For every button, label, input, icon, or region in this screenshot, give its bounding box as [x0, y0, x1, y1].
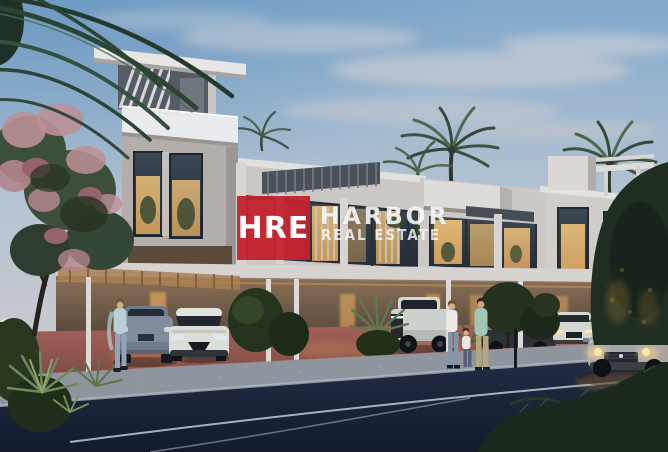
- roof-box: [548, 156, 588, 190]
- man-leg: [476, 336, 482, 368]
- planter-bush: [532, 293, 560, 317]
- bumper: [170, 350, 228, 357]
- headlight: [585, 330, 593, 333]
- blossom-cluster: [66, 146, 106, 174]
- blossom-cluster: [28, 188, 60, 212]
- indoor-plant: [177, 198, 195, 230]
- indoor-plant: [441, 242, 455, 262]
- wheel: [216, 356, 226, 361]
- hubcap: [405, 341, 411, 347]
- person-leg: [115, 334, 120, 368]
- hubcap: [437, 341, 443, 347]
- street-post: [514, 328, 517, 370]
- headlight: [594, 348, 602, 356]
- bush-highlight: [232, 296, 264, 324]
- blossom-cluster: [58, 249, 90, 271]
- badge: [619, 354, 623, 358]
- woman-leg: [448, 332, 453, 366]
- child-leg: [468, 349, 472, 367]
- person-head: [117, 302, 124, 309]
- cloud: [280, 96, 560, 124]
- person-leg: [122, 334, 127, 366]
- shoe: [447, 365, 453, 369]
- blossom-shadow: [44, 228, 68, 244]
- pergola-post: [604, 170, 608, 196]
- woman-leg: [454, 332, 459, 366]
- man-torso: [475, 308, 488, 336]
- shoe: [113, 368, 121, 372]
- round-bush: [269, 312, 309, 356]
- child-leg: [464, 349, 468, 367]
- column: [86, 277, 91, 372]
- side-mirror: [583, 338, 589, 342]
- woman-torso: [447, 310, 458, 332]
- person-torso: [114, 308, 127, 334]
- bush-base: [356, 330, 400, 358]
- roof-box-side: [588, 156, 596, 190]
- dark-leaves: [60, 196, 108, 232]
- dark-leaves: [30, 164, 70, 192]
- cloud: [330, 52, 630, 88]
- hre-logo-badge: HRE: [237, 196, 310, 260]
- hood-line: [172, 330, 226, 333]
- watermark-brand-suffix: REAL ESTATE: [321, 226, 441, 244]
- pilaster: [494, 214, 502, 270]
- child-torso: [462, 336, 471, 349]
- man-leg: [483, 336, 489, 368]
- shoe: [120, 366, 128, 370]
- headlight: [642, 348, 650, 356]
- hre-logo-text: HRE: [238, 211, 310, 246]
- rendering-canvas: HRE HARBOR REAL ESTATE: [0, 0, 668, 452]
- tower-window-divider: [162, 152, 170, 236]
- wheel: [172, 356, 182, 361]
- woman-head: [449, 303, 456, 310]
- uplight-glow: [606, 280, 630, 324]
- indoor-plant: [140, 196, 156, 224]
- white-compact-suv: [169, 308, 229, 363]
- wheel: [593, 359, 611, 377]
- uplight-glow: [638, 290, 658, 326]
- indoor-plant: [510, 245, 522, 263]
- license-plate: [138, 334, 154, 341]
- windshield: [559, 315, 589, 323]
- grille: [566, 332, 582, 338]
- child-head: [463, 330, 468, 335]
- shoe: [454, 365, 460, 369]
- lit-window: [470, 224, 496, 266]
- man-head: [478, 301, 485, 308]
